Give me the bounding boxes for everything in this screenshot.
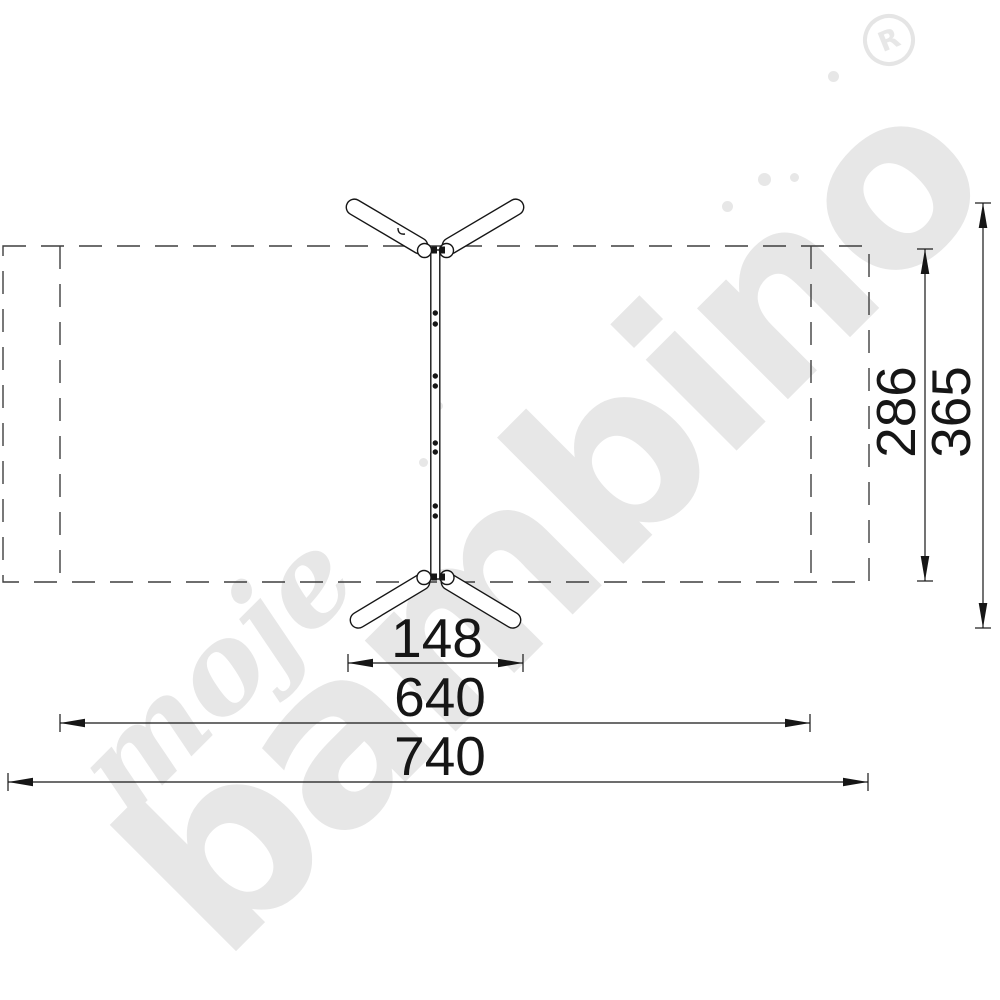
post-hole [433,449,438,454]
post-hole [433,513,438,518]
arrow-down-icon [921,556,930,581]
top-joint-clamp [440,247,446,254]
arrow-right-icon [785,719,810,728]
dim-label-inner-width: 640 [394,666,486,728]
arrow-down-icon [979,603,988,628]
dimension-total-height: 365 [920,203,991,628]
post-hole [433,440,438,445]
arrow-left-icon [8,778,33,787]
vertical-post [431,250,440,579]
technical-drawing-canvas: bambino moje R [0,0,1000,1000]
post-hole [433,321,438,326]
bottom-joint-circle-left [417,571,431,585]
dim-label-total-height: 365 [920,366,982,458]
arrow-right-icon [498,659,523,668]
post-hole [433,503,438,508]
bottom-joint-clamp [432,574,438,581]
top-joint-clamp [432,247,438,254]
top-joint-circle-left [418,244,432,258]
bottom-joint-clamp [440,574,446,581]
arrow-left-icon [60,719,85,728]
arrow-right-icon [843,778,868,787]
arrow-left-icon [348,659,373,668]
arrow-up-icon [979,203,988,228]
drawing-svg: 148 640 740 286 [0,0,1000,1000]
post-hole [433,310,438,315]
post-assembly [343,196,526,631]
arrow-up-icon [921,249,930,274]
dim-label-total-width: 740 [394,725,486,787]
dimension-inner-width: 640 [60,666,810,732]
dimension-total-width: 740 [8,725,868,791]
post-hole [433,383,438,388]
post-hole [433,373,438,378]
dim-label-inner-height: 286 [865,366,927,458]
dim-label-foot-width: 148 [391,607,483,669]
